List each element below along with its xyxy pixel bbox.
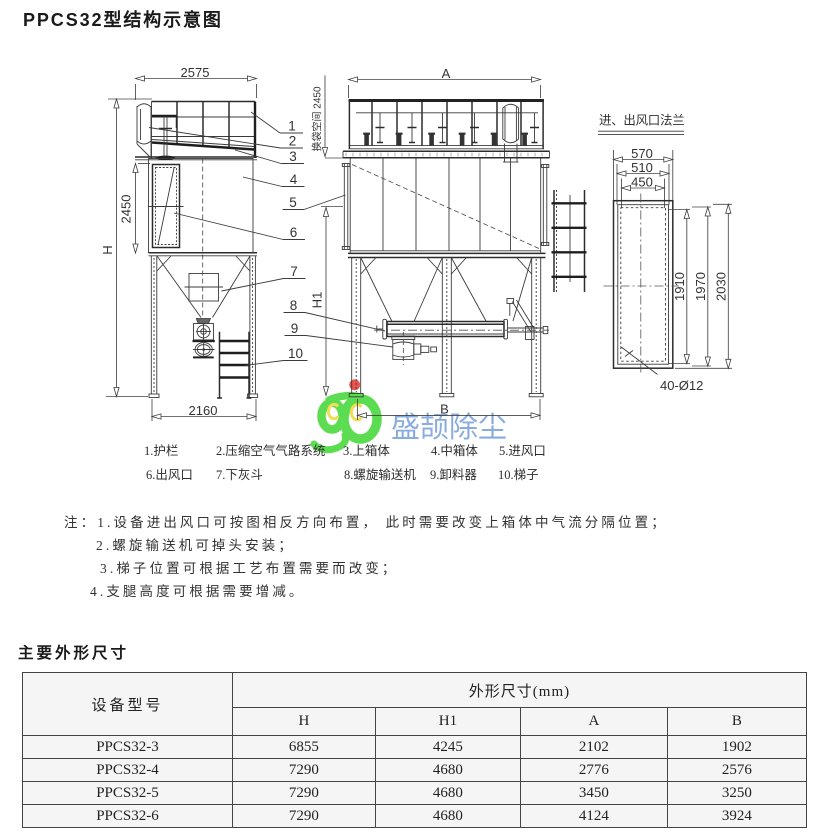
svg-text:进、出风口法兰: 进、出风口法兰: [599, 114, 684, 128]
svg-text:3: 3: [289, 149, 297, 164]
svg-text:5: 5: [289, 195, 297, 210]
svg-text:A: A: [442, 66, 451, 81]
svg-text:2030: 2030: [714, 272, 729, 301]
svg-text:40-Ø12: 40-Ø12: [660, 378, 703, 393]
svg-text:1: 1: [288, 119, 296, 134]
svg-text:H1: H1: [310, 292, 325, 309]
svg-text:2575: 2575: [181, 65, 210, 80]
svg-text:1970: 1970: [693, 272, 708, 301]
svg-text:510: 510: [631, 160, 653, 175]
svg-text:450: 450: [631, 175, 653, 190]
svg-text:1910: 1910: [672, 272, 687, 301]
svg-text:4: 4: [290, 172, 298, 187]
svg-text:2450: 2450: [119, 195, 134, 224]
svg-text:2: 2: [289, 134, 297, 149]
svg-text:7: 7: [290, 264, 298, 279]
svg-text:10: 10: [288, 346, 303, 361]
svg-text:8: 8: [290, 298, 298, 313]
svg-text:6: 6: [290, 225, 298, 240]
svg-text:换袋空间 2450: 换袋空间 2450: [311, 86, 324, 151]
svg-text:570: 570: [631, 146, 653, 161]
svg-text:H: H: [100, 245, 115, 254]
svg-text:2160: 2160: [189, 403, 218, 418]
svg-text:B: B: [440, 402, 449, 417]
svg-text:9: 9: [291, 321, 299, 336]
